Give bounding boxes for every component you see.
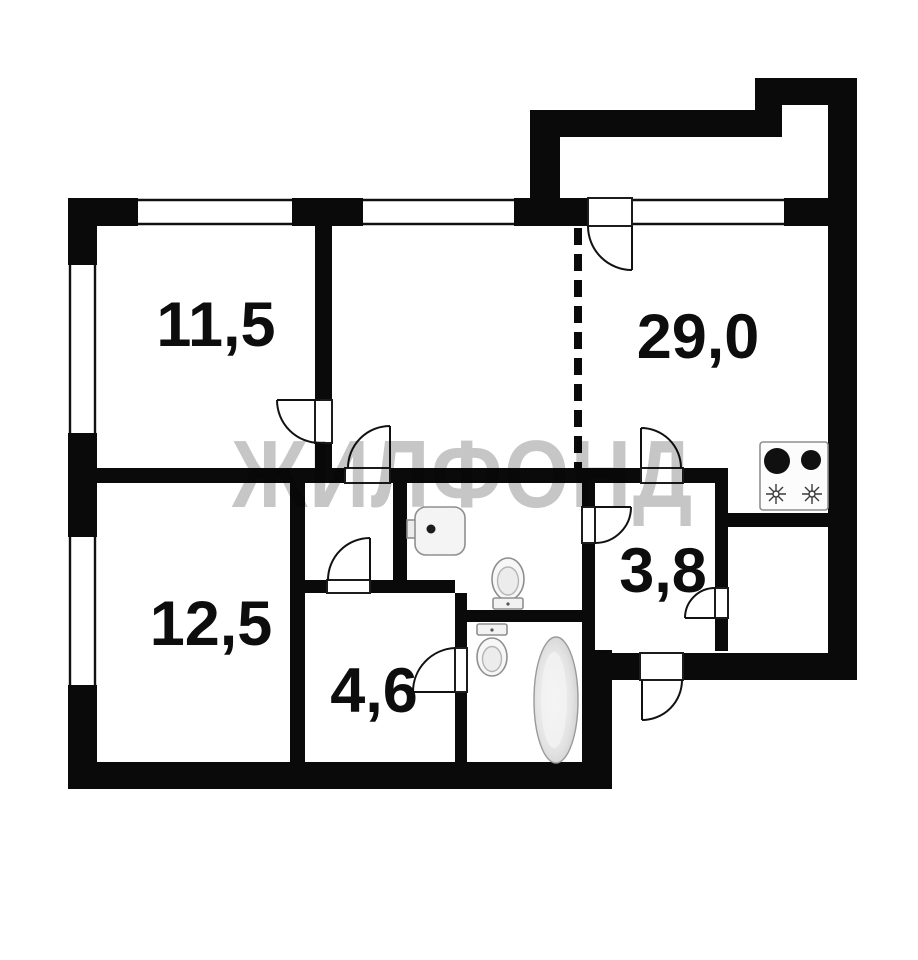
wall-stove-nook-bottom bbox=[715, 513, 830, 527]
wall-notch-left bbox=[755, 78, 782, 110]
room-label-11-5: 11,5 bbox=[156, 290, 275, 360]
jamb-room4-door bbox=[327, 580, 370, 593]
wall-loggia-left bbox=[530, 110, 560, 198]
window-loggia bbox=[632, 198, 784, 226]
wall-pantry-left bbox=[715, 470, 728, 651]
window-top-middle bbox=[363, 198, 514, 226]
jamb-balcony-door bbox=[588, 198, 632, 226]
jamb-pantry-door bbox=[715, 588, 728, 618]
stove-burner-small bbox=[801, 450, 821, 470]
room-label-3-8: 3,8 bbox=[619, 536, 707, 606]
toilet-bathroom-icon bbox=[477, 624, 507, 676]
stove-icon bbox=[760, 442, 828, 510]
door-entry-swing bbox=[642, 680, 682, 720]
wall-bathroom-top bbox=[455, 610, 595, 622]
stove-burner-large bbox=[764, 448, 790, 474]
toilet-wc-icon bbox=[492, 558, 524, 609]
bathtub-icon bbox=[534, 637, 578, 763]
room-label-12-5: 12,5 bbox=[150, 589, 273, 659]
door-room4-swing bbox=[328, 538, 370, 580]
window-left-upper bbox=[68, 265, 97, 433]
watermark-text: ЖИЛФОНД bbox=[231, 421, 694, 528]
door-bathroom-swing bbox=[413, 648, 455, 692]
wall-bottom bbox=[68, 762, 612, 789]
door-balcony-swing bbox=[588, 226, 632, 270]
jamb-bathroom-door bbox=[455, 648, 467, 692]
floor-plan-image: 11,5 29,0 12,5 4,6 3,8 ЖИЛФОНД bbox=[0, 0, 918, 960]
stove-gas-symbol-right bbox=[802, 484, 822, 504]
wall-room4-top bbox=[290, 580, 455, 593]
room-label-4-6: 4,6 bbox=[330, 656, 418, 726]
wall-right bbox=[828, 78, 857, 680]
wall-bottom-right bbox=[582, 653, 857, 680]
room-label-29-0: 29,0 bbox=[637, 302, 760, 372]
window-top-left bbox=[138, 198, 292, 226]
jamb-entry-door bbox=[640, 653, 683, 680]
stove-gas-symbol-left bbox=[766, 484, 786, 504]
wall-loggia-top bbox=[530, 110, 782, 137]
window-left-lower bbox=[68, 537, 97, 685]
